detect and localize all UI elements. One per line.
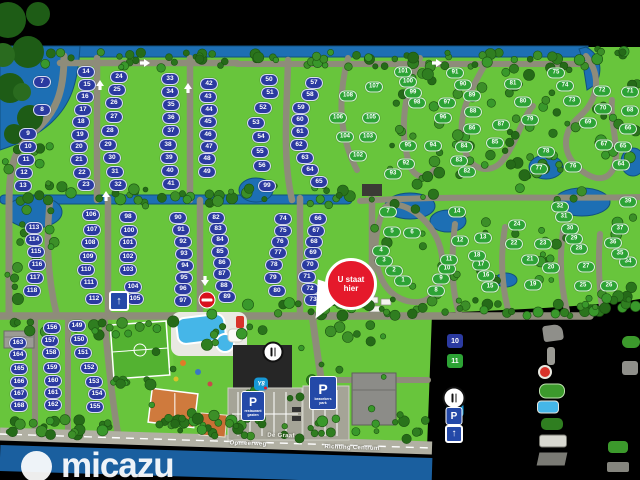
plot-blue-46[interactable]: 46	[199, 129, 217, 141]
plot-blue-11[interactable]: 11	[17, 154, 35, 166]
plot-blue-15[interactable]: 15	[78, 79, 96, 91]
micazu-logo-icon	[21, 451, 52, 480]
plot-blue-37[interactable]: 37	[162, 125, 180, 137]
plot-blue-7[interactable]: 7	[33, 76, 51, 88]
plot-blue-34[interactable]: 34	[161, 86, 179, 98]
plot-blue-62[interactable]: 62	[290, 139, 308, 151]
plot-blue-39[interactable]: 39	[160, 152, 178, 164]
plot-blue-38[interactable]: 38	[159, 139, 177, 151]
plot-green-6[interactable]: 6	[403, 228, 421, 239]
plot-green-1[interactable]: 1	[394, 276, 412, 287]
plot-green-86[interactable]: 86	[463, 124, 481, 135]
plot-green-14[interactable]: 14	[448, 207, 466, 218]
plot-green-101[interactable]: 101	[394, 67, 412, 78]
road-label-de-graaf: De Graaf	[267, 433, 295, 440]
plot-blue-27[interactable]: 27	[105, 111, 123, 123]
plot-green-99[interactable]: 99	[404, 88, 422, 99]
plot-blue-112[interactable]: 112	[85, 293, 103, 305]
plot-blue-22[interactable]: 22	[73, 167, 91, 179]
plot-green-3[interactable]: 3	[375, 256, 393, 267]
plot-green-37[interactable]: 37	[611, 224, 629, 235]
plot-blue-89[interactable]: 89	[218, 291, 236, 303]
plot-blue-59[interactable]: 59	[292, 102, 310, 114]
plot-blue-24[interactable]: 24	[110, 71, 128, 83]
plot-blue-91[interactable]: 91	[172, 224, 190, 236]
legend-partial-gray2-icon	[607, 462, 629, 472]
plot-green-69[interactable]: 69	[579, 118, 597, 129]
plot-blue-165[interactable]: 165	[10, 363, 28, 375]
plot-green-68[interactable]: 68	[621, 106, 639, 117]
plot-green-97[interactable]: 97	[438, 98, 456, 109]
legend-partial-green-icon	[622, 336, 640, 348]
plot-green-13[interactable]: 13	[474, 233, 492, 244]
plot-green-5[interactable]: 5	[383, 227, 401, 238]
plot-green-24[interactable]: 24	[508, 220, 526, 231]
plot-blue-53[interactable]: 53	[247, 117, 265, 129]
plot-green-92[interactable]: 92	[397, 159, 415, 170]
plot-green-89[interactable]: 89	[463, 91, 481, 102]
plot-blue-110[interactable]: 110	[77, 264, 95, 276]
plot-blue-100[interactable]: 100	[120, 225, 138, 237]
plot-green-90[interactable]: 90	[454, 80, 472, 91]
plot-blue-48[interactable]: 48	[198, 153, 216, 165]
plot-green-27[interactable]: 27	[577, 262, 595, 273]
plot-blue-101[interactable]: 101	[119, 237, 137, 249]
plot-green-36[interactable]: 36	[604, 238, 622, 249]
plot-blue-57[interactable]: 57	[305, 77, 323, 89]
plot-blue-64[interactable]: 64	[301, 164, 319, 176]
plot-blue-94[interactable]: 94	[176, 260, 194, 272]
plot-blue-55[interactable]: 55	[251, 146, 269, 158]
plot-blue-108[interactable]: 108	[81, 237, 99, 249]
legend-garden-icon	[541, 418, 563, 430]
park-map: 7891011121314151617181920212223242526272…	[0, 0, 640, 480]
plot-green-16[interactable]: 16	[477, 271, 495, 282]
plot-blue-25[interactable]: 25	[108, 84, 126, 96]
plot-blue-65[interactable]: 65	[310, 176, 328, 188]
plot-green-31[interactable]: 31	[555, 212, 573, 223]
plot-blue-26[interactable]: 26	[105, 97, 123, 109]
plot-green-9[interactable]: 9	[432, 274, 450, 285]
plot-green-22[interactable]: 22	[505, 239, 523, 250]
plot-blue-153[interactable]: 153	[85, 376, 103, 388]
parking-sign-visitors: P bezoekers park	[309, 376, 337, 410]
plot-blue-9[interactable]: 9	[19, 128, 37, 140]
plot-green-95[interactable]: 95	[399, 141, 417, 152]
plot-blue-40[interactable]: 40	[161, 165, 179, 177]
plot-green-70[interactable]: 70	[594, 104, 612, 115]
plot-blue-111[interactable]: 111	[80, 277, 98, 289]
plot-blue-160[interactable]: 160	[44, 375, 62, 387]
plot-green-105[interactable]: 105	[362, 113, 380, 124]
plot-green-94[interactable]: 94	[424, 141, 442, 152]
plot-blue-96[interactable]: 96	[174, 283, 192, 295]
plot-blue-10[interactable]: 10	[19, 141, 37, 153]
plot-blue-80[interactable]: 80	[268, 285, 286, 297]
legend-partial-green2-icon	[608, 441, 628, 453]
plot-blue-116[interactable]: 116	[28, 259, 46, 271]
plot-blue-163[interactable]: 163	[9, 337, 27, 349]
plot-green-78[interactable]: 78	[537, 147, 555, 158]
plot-blue-13[interactable]: 13	[14, 180, 32, 192]
plot-blue-20[interactable]: 20	[70, 141, 88, 153]
plot-blue-43[interactable]: 43	[199, 91, 217, 103]
plot-green-87[interactable]: 87	[492, 120, 510, 131]
plot-blue-117[interactable]: 117	[26, 272, 44, 284]
plot-blue-157[interactable]: 157	[41, 335, 59, 347]
plot-green-106[interactable]: 106	[329, 113, 347, 124]
road-label-opmeerweg: Opmeerweg	[229, 440, 266, 447]
plot-blue-90[interactable]: 90	[169, 212, 187, 224]
plot-blue-61[interactable]: 61	[291, 126, 309, 138]
plot-blue-77[interactable]: 77	[269, 247, 287, 259]
plot-blue-150[interactable]: 150	[70, 334, 88, 346]
plot-blue-79[interactable]: 79	[264, 272, 282, 284]
plot-blue-58[interactable]: 58	[301, 89, 319, 101]
micazu-logo-text: micazu	[61, 446, 174, 480]
plot-blue-30[interactable]: 30	[103, 152, 121, 164]
plot-blue-98[interactable]: 98	[119, 211, 137, 223]
plot-green-73[interactable]: 73	[563, 96, 581, 107]
legend-building-icon	[537, 453, 568, 466]
plot-blue-155[interactable]: 155	[86, 401, 104, 413]
plot-blue-71[interactable]: 71	[298, 271, 316, 283]
plot-blue-149[interactable]: 149	[68, 320, 86, 332]
plot-green-81[interactable]: 81	[504, 79, 522, 90]
plot-green-23[interactable]: 23	[534, 239, 552, 250]
plot-green-15[interactable]: 15	[481, 282, 499, 293]
plot-green-83[interactable]: 83	[450, 156, 468, 167]
plot-blue-159[interactable]: 159	[43, 362, 61, 374]
plot-green-18[interactable]: 18	[468, 251, 486, 262]
plot-blue-118[interactable]: 118	[23, 285, 41, 297]
plot-blue-49[interactable]: 49	[198, 166, 216, 178]
plot-green-96[interactable]: 96	[434, 113, 452, 124]
legend-green-plot: 11	[447, 354, 463, 368]
plot-green-26[interactable]: 26	[600, 281, 618, 292]
plot-green-88[interactable]: 88	[464, 107, 482, 118]
plot-blue-54[interactable]: 54	[252, 131, 270, 143]
plot-blue-56[interactable]: 56	[253, 160, 271, 172]
one-way-sign: ↑	[109, 291, 129, 311]
legend-trees-icon	[539, 384, 565, 399]
restaurant-logo: Y8	[254, 378, 268, 391]
plot-blue-161[interactable]: 161	[44, 387, 62, 399]
legend-bus-icon	[539, 435, 567, 448]
legend-playground-icon	[542, 324, 564, 343]
plot-green-98[interactable]: 98	[408, 98, 426, 109]
plot-green-20[interactable]: 20	[542, 263, 560, 274]
plot-green-76[interactable]: 76	[564, 162, 582, 173]
legend-pool-icon	[537, 401, 559, 414]
plot-blue-31[interactable]: 31	[106, 166, 124, 178]
plot-green-25[interactable]: 25	[574, 281, 592, 292]
plot-blue-29[interactable]: 29	[99, 139, 117, 151]
plot-green-11[interactable]: 11	[440, 255, 458, 266]
plot-blue-162[interactable]: 162	[44, 399, 62, 411]
plot-blue-152[interactable]: 152	[80, 362, 98, 374]
plot-blue-12[interactable]: 12	[15, 167, 33, 179]
plot-blue-23[interactable]: 23	[77, 179, 95, 191]
plot-blue-103[interactable]: 103	[119, 264, 137, 276]
plot-blue-32[interactable]: 32	[109, 179, 127, 191]
plot-blue-78[interactable]: 78	[265, 259, 283, 271]
plot-blue-33[interactable]: 33	[161, 73, 179, 85]
plot-blue-8[interactable]: 8	[33, 104, 51, 116]
plot-blue-17[interactable]: 17	[74, 104, 92, 116]
micazu-watermark: micazu	[21, 446, 174, 480]
plot-blue-47[interactable]: 47	[200, 141, 218, 153]
plot-blue-45[interactable]: 45	[199, 116, 217, 128]
legend-one-way-icon: ↑	[445, 425, 463, 443]
plot-blue-41[interactable]: 41	[162, 178, 180, 190]
plot-green-77[interactable]: 77	[530, 164, 548, 175]
plot-blue-113[interactable]: 113	[25, 222, 43, 234]
plot-green-7[interactable]: 7	[379, 207, 397, 218]
plot-blue-51[interactable]: 51	[261, 87, 279, 99]
plot-blue-97[interactable]: 97	[174, 295, 192, 307]
plot-green-104[interactable]: 104	[336, 132, 354, 143]
plot-blue-164[interactable]: 164	[9, 349, 27, 361]
plot-green-84[interactable]: 84	[455, 142, 473, 153]
plot-blue-109[interactable]: 109	[79, 251, 97, 263]
plot-blue-60[interactable]: 60	[291, 114, 309, 126]
plot-blue-42[interactable]: 42	[200, 78, 218, 90]
plot-green-102[interactable]: 102	[349, 151, 367, 162]
plot-green-32[interactable]: 32	[551, 202, 569, 213]
plot-green-2[interactable]: 2	[385, 266, 403, 277]
plot-blue-107[interactable]: 107	[83, 224, 101, 236]
plot-blue-21[interactable]: 21	[70, 154, 88, 166]
legend-parking-icon: P	[446, 407, 463, 425]
plot-green-29[interactable]: 29	[565, 234, 583, 245]
plot-blue-52[interactable]: 52	[254, 102, 272, 114]
legend-partial-gray-icon	[622, 361, 638, 375]
plot-blue-44[interactable]: 44	[200, 104, 218, 116]
plot-blue-18[interactable]: 18	[72, 116, 90, 128]
no-entry-sign	[199, 292, 216, 309]
plot-blue-106[interactable]: 106	[82, 209, 100, 221]
plot-blue-93[interactable]: 93	[175, 248, 193, 260]
plot-green-107[interactable]: 107	[365, 82, 383, 93]
plot-blue-63[interactable]: 63	[296, 152, 314, 164]
plot-green-64[interactable]: 64	[612, 160, 630, 171]
plot-blue-16[interactable]: 16	[76, 91, 94, 103]
restaurant-icon	[263, 342, 284, 363]
plot-green-28[interactable]: 28	[570, 244, 588, 255]
plot-blue-35[interactable]: 35	[162, 99, 180, 111]
plot-blue-36[interactable]: 36	[162, 112, 180, 124]
legend-blue-plot: 10	[447, 334, 463, 348]
plot-green-93[interactable]: 93	[384, 169, 402, 180]
plot-green-8[interactable]: 8	[427, 286, 445, 297]
plot-blue-99[interactable]: 99	[258, 180, 276, 192]
plot-blue-84[interactable]: 84	[211, 234, 229, 246]
plot-green-71[interactable]: 71	[621, 87, 639, 98]
plot-green-21[interactable]: 21	[521, 255, 539, 266]
plot-green-91[interactable]: 91	[446, 68, 464, 79]
plot-blue-102[interactable]: 102	[119, 251, 137, 263]
legend-statue-icon	[547, 347, 555, 365]
plot-green-66[interactable]: 66	[619, 124, 637, 135]
plot-green-74[interactable]: 74	[556, 81, 574, 92]
plot-green-85[interactable]: 85	[486, 138, 504, 149]
plot-green-100[interactable]: 100	[399, 77, 417, 88]
plot-blue-114[interactable]: 114	[25, 234, 43, 246]
plot-green-103[interactable]: 103	[359, 132, 377, 143]
plot-green-35[interactable]: 35	[611, 249, 629, 260]
plot-blue-92[interactable]: 92	[174, 236, 192, 248]
plot-blue-87[interactable]: 87	[213, 268, 231, 280]
parking-sign-restaurant: P restaurant gasten	[241, 391, 265, 421]
plot-green-82[interactable]: 82	[458, 167, 476, 178]
you-are-here-marker[interactable]: U staat hier	[317, 258, 377, 324]
you-are-here-line2: hier	[344, 284, 359, 293]
plot-blue-74[interactable]: 74	[274, 213, 292, 225]
plot-blue-50[interactable]: 50	[260, 74, 278, 86]
plot-blue-28[interactable]: 28	[101, 125, 119, 137]
plot-green-79[interactable]: 79	[521, 115, 539, 126]
plot-green-72[interactable]: 72	[593, 86, 611, 97]
plot-blue-168[interactable]: 168	[10, 400, 28, 412]
plot-blue-158[interactable]: 158	[42, 347, 60, 359]
plot-green-30[interactable]: 30	[561, 224, 579, 235]
plot-blue-151[interactable]: 151	[74, 347, 92, 359]
plot-green-67[interactable]: 67	[595, 140, 613, 151]
plot-blue-115[interactable]: 115	[27, 246, 45, 258]
plot-green-4[interactable]: 4	[372, 246, 390, 257]
legend-marker-icon	[538, 365, 552, 379]
plot-blue-66[interactable]: 66	[309, 213, 327, 225]
you-are-here-line1: U staat	[338, 275, 365, 284]
plot-green-65[interactable]: 65	[614, 142, 632, 153]
plot-blue-167[interactable]: 167	[10, 388, 28, 400]
plot-blue-19[interactable]: 19	[71, 129, 89, 141]
plot-blue-156[interactable]: 156	[43, 322, 61, 334]
plot-blue-166[interactable]: 166	[10, 376, 28, 388]
plot-green-19[interactable]: 19	[524, 280, 542, 291]
plot-green-12[interactable]: 12	[451, 236, 469, 247]
plot-blue-154[interactable]: 154	[88, 388, 106, 400]
plot-green-108[interactable]: 108	[339, 91, 357, 102]
plot-blue-14[interactable]: 14	[77, 66, 95, 78]
plot-green-39[interactable]: 39	[619, 197, 637, 208]
plot-green-75[interactable]: 75	[547, 68, 565, 79]
plot-green-80[interactable]: 80	[514, 97, 532, 108]
